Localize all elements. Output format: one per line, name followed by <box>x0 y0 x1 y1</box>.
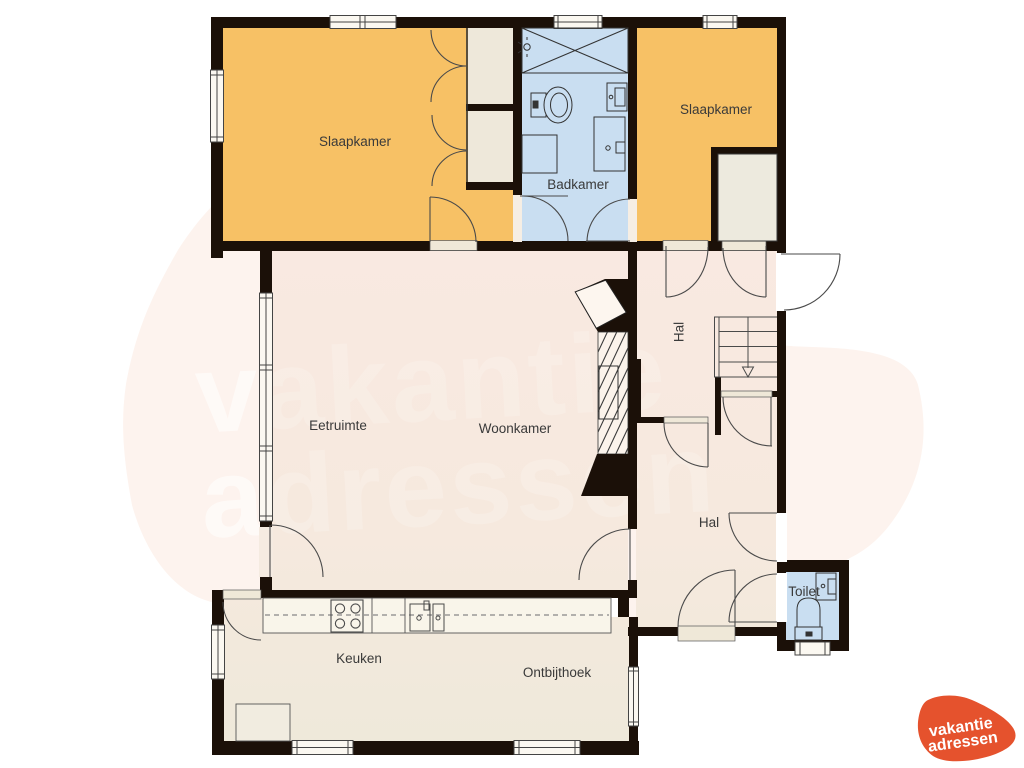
svg-text:Toilet: Toilet <box>788 584 820 599</box>
svg-text:Slaapkamer: Slaapkamer <box>319 134 392 149</box>
svg-text:Badkamer: Badkamer <box>547 177 609 192</box>
svg-text:Hal: Hal <box>699 515 719 530</box>
svg-text:Hal: Hal <box>672 322 687 342</box>
svg-text:Keuken: Keuken <box>336 651 382 666</box>
svg-text:Slaapkamer: Slaapkamer <box>680 102 753 117</box>
svg-text:Ontbijthoek: Ontbijthoek <box>523 665 592 680</box>
svg-text:Woonkamer: Woonkamer <box>479 421 552 436</box>
svg-text:Eetruimte: Eetruimte <box>309 418 367 433</box>
